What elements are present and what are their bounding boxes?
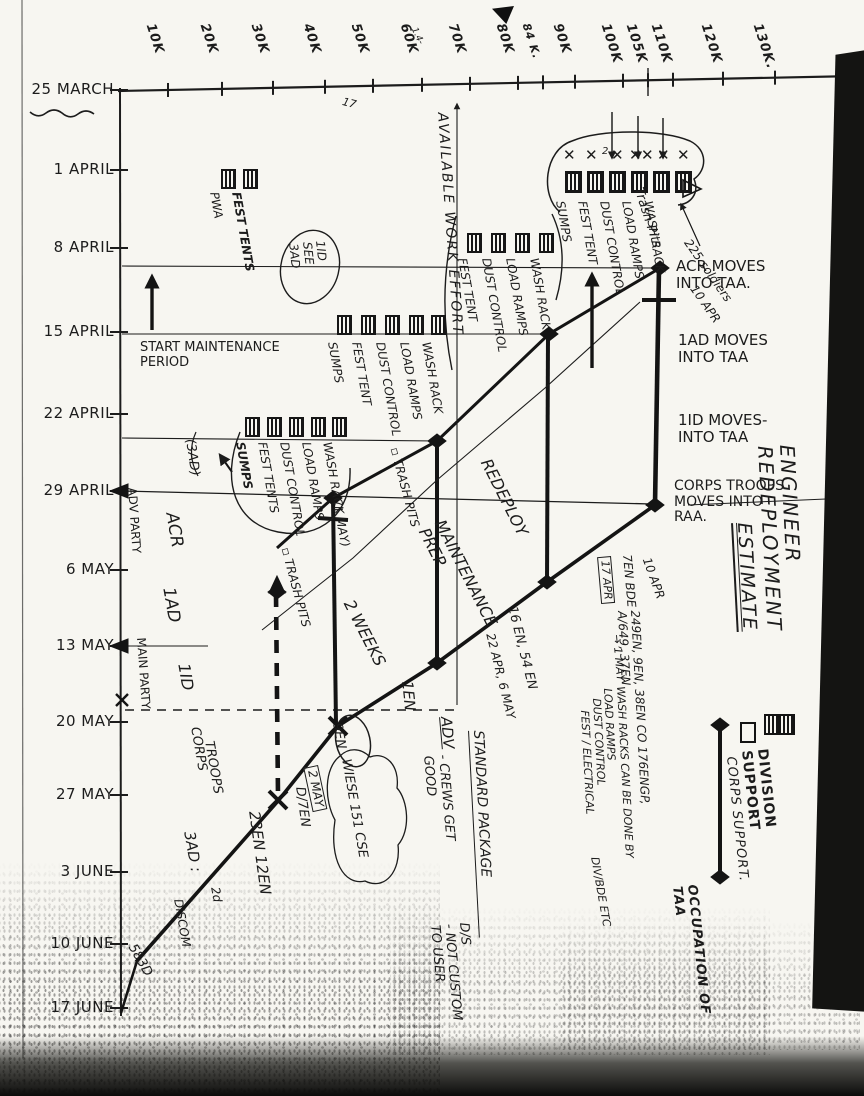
facility-symbol <box>675 171 692 193</box>
closed-x-mark: ✕ <box>629 146 642 164</box>
closed-x-mark: ✕ <box>585 146 598 164</box>
facility-symbol <box>337 315 352 335</box>
col-2d: 2d <box>208 886 224 903</box>
stray-2: 2 <box>602 146 608 157</box>
1ad-moves-note: 1AD MOVES INTO TAA <box>678 332 768 366</box>
date-tick-label: 3 JUNE <box>22 863 114 880</box>
facility-symbol <box>491 233 506 253</box>
date-tick-label: 15 APRIL <box>22 323 114 340</box>
facility-symbol <box>267 417 282 437</box>
facility-symbol <box>609 171 626 193</box>
page-title: ENGINEER REDEPLOYMENT <box>753 444 807 632</box>
1id-moves-note: 1ID MOVES- INTO TAA <box>678 412 767 446</box>
scanned-chart-page: ENGINEER REDEPLOYMENT ESTIMATE DIVISION … <box>0 0 864 1096</box>
bar-label-1en: 1EN <box>398 680 418 712</box>
date-tick-label: 25 MARCH <box>22 81 114 98</box>
note-1id-see-3ad: 1ID SEE 3AD <box>286 240 329 269</box>
date-tick-label: 29 APRIL <box>22 482 114 499</box>
facility-symbol <box>245 417 260 437</box>
date-tick-label: 20 MAY <box>22 713 114 730</box>
facility-symbol <box>467 233 482 253</box>
page-subtitle: ESTIMATE <box>731 522 760 632</box>
facility-symbol <box>221 169 236 189</box>
closed-x-mark: ✕ <box>677 146 690 164</box>
facility-symbol <box>409 315 424 335</box>
closed-x-mark: ✕ <box>611 146 624 164</box>
corps-support-icon <box>740 722 756 743</box>
note-9en: 9EN <box>329 722 348 750</box>
facility-symbol <box>385 315 400 335</box>
facility-symbol <box>311 417 326 437</box>
date-tick-label: 8 APRIL <box>22 239 114 256</box>
ds-note: D/S - NOT CUSTOM TO USER <box>427 922 479 1023</box>
closed-x-mark: ✕ <box>641 146 654 164</box>
facility-symbol <box>587 171 604 193</box>
division-support-icon-2 <box>779 714 795 735</box>
facility-symbol <box>361 315 376 335</box>
date-tick-label: 10 JUNE <box>22 935 114 952</box>
facility-symbol <box>565 171 582 193</box>
start-maintenance-note: START MAINTENANCE PERIOD <box>140 341 280 370</box>
facility-symbol <box>332 417 347 437</box>
date-tick-label: 1 APRIL <box>22 161 114 178</box>
facility-symbol <box>515 233 530 253</box>
closed-x-mark: ✕ <box>563 146 576 164</box>
date-tick-label: 17 JUNE <box>22 999 114 1016</box>
facility-symbol <box>243 169 258 189</box>
facility-symbol <box>289 417 304 437</box>
date-tick-label: 22 APRIL <box>22 405 114 422</box>
col-1id: 1ID <box>174 662 196 692</box>
facility-symbol <box>539 233 554 253</box>
paper-crease-line <box>22 0 23 1058</box>
date-tick-label: 27 MAY <box>22 786 114 803</box>
closed-x-mark: ✕ <box>657 146 670 164</box>
adv-label: ADV <box>437 716 457 749</box>
corps-troops-note: CORPS TROOPS MOVES INTO RAA. <box>674 479 784 526</box>
facility-symbol <box>653 171 670 193</box>
date-tick-label: 6 MAY <box>22 561 114 578</box>
date-tick-label: 13 MAY <box>22 637 114 654</box>
crews-note: - CREWS GET GOOD <box>420 754 457 843</box>
facility-symbol <box>431 315 446 335</box>
division-support-icon-1 <box>764 714 780 735</box>
